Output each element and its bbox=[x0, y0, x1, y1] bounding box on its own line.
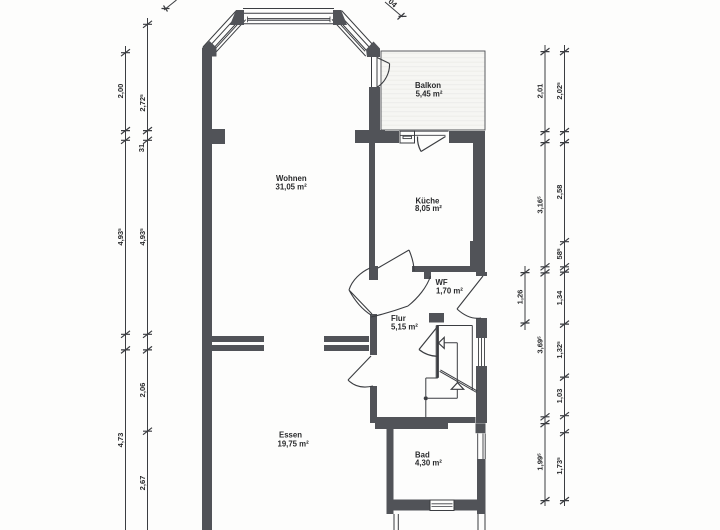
svg-text:1,26: 1,26 bbox=[516, 290, 525, 305]
svg-text:2,58: 2,58 bbox=[555, 185, 564, 200]
svg-text:Essen: Essen bbox=[279, 431, 302, 440]
svg-text:2,06: 2,06 bbox=[138, 383, 147, 398]
svg-text:31,05 m²: 31,05 m² bbox=[276, 183, 308, 192]
svg-text:19,75 m²: 19,75 m² bbox=[278, 440, 310, 449]
svg-text:8,05 m²: 8,05 m² bbox=[415, 204, 442, 213]
svg-text:5,15 m²: 5,15 m² bbox=[391, 323, 418, 332]
svg-text:2,67: 2,67 bbox=[138, 476, 147, 491]
svg-text:1,70 m²: 1,70 m² bbox=[436, 287, 463, 296]
svg-text:5,45 m²: 5,45 m² bbox=[416, 90, 443, 99]
svg-text:31: 31 bbox=[137, 143, 146, 152]
svg-text:1,34: 1,34 bbox=[555, 290, 564, 306]
svg-text:2,01: 2,01 bbox=[536, 83, 545, 99]
svg-text:4,30 m²: 4,30 m² bbox=[415, 459, 442, 468]
svg-text:1,03: 1,03 bbox=[555, 389, 564, 404]
svg-text:4,73: 4,73 bbox=[116, 433, 125, 448]
svg-text:2,00: 2,00 bbox=[116, 84, 125, 99]
